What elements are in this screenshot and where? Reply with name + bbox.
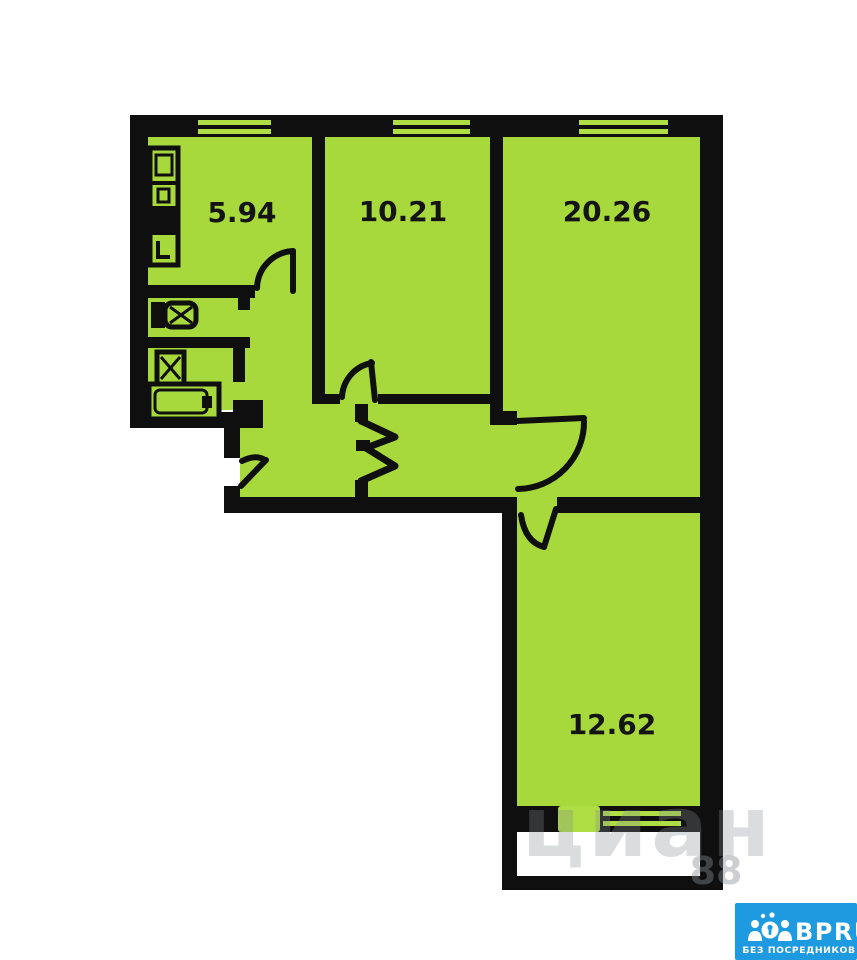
wall-wc-bath-divider — [148, 337, 250, 348]
sink-icon — [157, 352, 184, 384]
room-label-room2: 12.62 — [568, 708, 657, 741]
upper-rooms-area — [148, 137, 700, 410]
kitchen-appliances-icon — [150, 148, 178, 265]
wall-corner-pillar — [233, 400, 263, 428]
wall-room2-top — [557, 497, 700, 513]
wall-right — [700, 115, 723, 890]
hallway-area — [240, 410, 700, 497]
wall-wc-right — [238, 285, 250, 310]
room-label-room1: 10.21 — [359, 195, 448, 228]
watermark-number: 88 — [690, 849, 743, 893]
brand-logo: BPRU БЕЗ ПОСРЕДНИКОВ — [735, 903, 857, 960]
bathtub-icon — [149, 384, 219, 419]
wall-room1-bottom-right — [378, 394, 503, 404]
room-label-kitchen: 5.94 — [207, 196, 276, 229]
wall-wing-left — [502, 497, 517, 890]
wall-bath-right — [233, 348, 245, 382]
wall-kitchen-room1-divider — [312, 137, 325, 404]
room-areas — [148, 137, 700, 806]
toilet-icon — [151, 302, 196, 328]
logo-brand-text: BPRU — [795, 918, 857, 946]
watermark: циан 88 — [522, 778, 774, 893]
wall-hall-bottom — [224, 497, 517, 513]
wall-left — [130, 115, 148, 428]
wall-room1-living-divider — [490, 137, 503, 425]
logo-tagline-text: БЕЗ ПОСРЕДНИКОВ — [742, 945, 855, 956]
room-label-living: 20.26 — [563, 195, 652, 228]
wall-room1-bottom-left — [312, 394, 340, 404]
wall-kitchen-bottom — [130, 285, 255, 298]
floorplan-page: 5.94 10.21 20.26 12.62 циан 88 BPRU БЕЗ … — [0, 0, 857, 960]
floorplan-drawing: 5.94 10.21 20.26 12.62 циан 88 BPRU БЕЗ … — [0, 0, 857, 960]
